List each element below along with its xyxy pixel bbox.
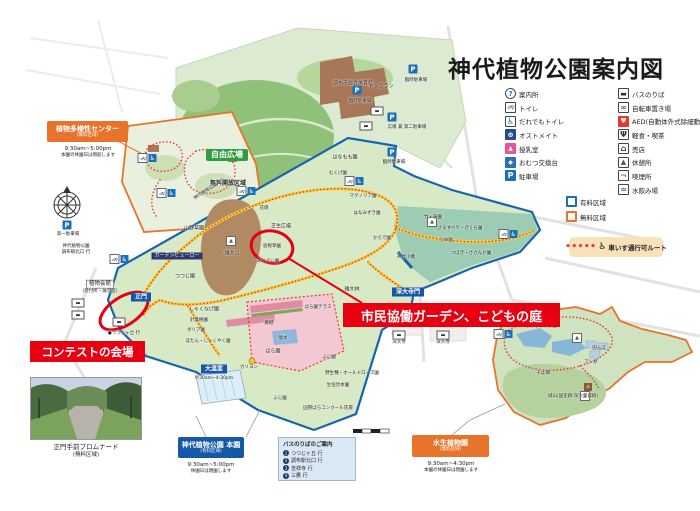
carillon xyxy=(249,358,255,364)
legend-label: 軽食・喫茶 xyxy=(632,130,665,140)
route-label: つつじヶ丘 行 xyxy=(291,450,323,457)
map-label: 野生種・オールドローズ園 xyxy=(325,372,379,377)
area-name: 神代植物公園 本園 xyxy=(178,441,244,449)
legend-item: ⌂売店 xyxy=(618,142,700,156)
map-label: つつじ園 xyxy=(175,275,195,280)
map-label: 正門 xyxy=(131,293,151,302)
diversity-center-hours: 9:30am~5:00pm 本園の休園日は閉館します xyxy=(61,145,115,160)
paid-icon xyxy=(566,196,577,207)
map-label: むくげ園 xyxy=(329,172,347,177)
legend-label: AED(自動体外式除細動器) xyxy=(632,116,700,126)
map-label: 深大寺 xyxy=(392,341,406,346)
wheelchair-icon: ♿ xyxy=(598,243,606,252)
map-icon-wc: ♂♀♿ xyxy=(345,176,364,186)
map-label: 調布市総合体育館 xyxy=(333,82,373,87)
legend-label: 自転車置き場 xyxy=(632,103,671,113)
bus-icon: ▬ xyxy=(437,331,450,340)
map-label: 竹・笹園 xyxy=(424,216,442,221)
photo-caption: 正門手前プロムナード (無料区域) xyxy=(54,443,119,459)
rest-area-icon: ▲ xyxy=(572,333,582,343)
map-label: 針葉樹園 xyxy=(190,319,208,324)
map-label: しゃくなげ園 xyxy=(189,308,219,313)
map-icon-p: P xyxy=(63,221,72,230)
map-label: 神代植物公園 xyxy=(63,245,90,250)
legend-item: ♥AED(自動体外式除細動器) xyxy=(618,114,700,128)
label-connector xyxy=(196,410,260,437)
nurse-icon: ▲ xyxy=(505,143,516,154)
map-icon-p: P xyxy=(388,148,397,157)
park-map-page: 神代植物公園案内図 ?案内所♂♀トイレ♿だれでもトイレ⊕オストメイト▲授乳室◆お… xyxy=(0,0,700,511)
map-icon-bus: ▬ xyxy=(72,299,85,308)
map-label: 植物会館 xyxy=(86,280,114,289)
legend-item: ¬喫煙所 xyxy=(618,169,700,183)
toilet-icon: ♂♀ xyxy=(499,229,509,239)
toilet-icon: ♂♀ xyxy=(138,153,148,163)
map-icon-wc: ♂♀♿ xyxy=(110,254,129,264)
legend-item: ▲授乳室 xyxy=(505,142,564,156)
map-label: ぼたん・しゃくやく園 xyxy=(186,340,231,345)
legend-item: 無料区域 xyxy=(566,209,606,224)
toilet-icon: ♂♀ xyxy=(494,329,504,339)
main-garden-hours: 9:30am~5:00pm 休園日は閉園します xyxy=(188,461,235,476)
map-label: カリヨン xyxy=(240,366,258,371)
legend-item: 有料区域 xyxy=(566,194,606,209)
parking-icon: P xyxy=(63,221,72,230)
shop-icon: ⌂ xyxy=(618,143,629,154)
aquatic-garden-box: 水生植物園 (無料区域) xyxy=(412,435,489,457)
map-icon-p: P xyxy=(388,113,397,122)
legend-column-2: ▬バスのりば∞自転車置き場♥AED(自動体外式除細動器)Ψ軽食・喫茶⌂売店▲休憩… xyxy=(618,87,700,197)
toilet-icon: ♂♀ xyxy=(157,188,167,198)
map-label: 噴水 xyxy=(279,337,288,342)
bus-stop-guide: バスのりばのご案内 1つつじヶ丘 行2調布駅北口 行3吉祥寺 行4三鷹 行 xyxy=(278,437,356,481)
scale-bar xyxy=(353,429,389,433)
bus-guide-rows: 1つつじヶ丘 行2調布駅北口 行3吉祥寺 行4三鷹 行 xyxy=(283,450,351,480)
area-zone: (有料区域) xyxy=(178,449,244,454)
map-label: 城山(国史跡:深大寺城跡) xyxy=(548,395,598,400)
accessible-toilet-icon: ♿ xyxy=(505,330,513,338)
bus-icon: ▬ xyxy=(360,122,373,131)
map-label: 第一駐車場 xyxy=(57,233,80,238)
map-icon-wc: ♂♀♿ xyxy=(237,186,256,196)
map-label: かえで園 xyxy=(373,237,391,242)
acc-icon: ♿ xyxy=(505,116,516,127)
plaza-grove xyxy=(172,80,220,112)
bus-guide-title: バスのりばのご案内 xyxy=(283,440,351,448)
bus-icon: ▬ xyxy=(72,311,85,320)
map-label: 深大寺 xyxy=(436,341,450,346)
diaper-icon: ◆ xyxy=(505,157,516,168)
main-garden-box: 神代植物公園 本園 (有料区域) xyxy=(178,437,244,458)
free-icon xyxy=(566,211,577,222)
map-label: 藤棚 xyxy=(265,322,274,327)
accessible-toilet-icon: ♿ xyxy=(248,187,256,195)
bus-route: 3吉祥寺 行 xyxy=(283,465,351,473)
map-label: 田んぼ xyxy=(592,347,606,352)
wheelchair-route-label: 車いす通行可ルート xyxy=(608,242,667,252)
legend-item: ?案内所 xyxy=(505,87,564,101)
route-label: 調布駅北口 行 xyxy=(291,457,323,464)
map-label: 神代小橋 xyxy=(397,256,415,261)
hours-line: 9:30am~5:00pm xyxy=(188,461,235,469)
map-icon-wc: ♂♀♿ xyxy=(494,329,513,339)
accessible-toilet-icon: ♿ xyxy=(121,255,129,263)
map-label: ドッグラン xyxy=(368,85,393,90)
route-label: 吉祥寺 行 xyxy=(291,465,313,472)
map-label: 雑木山 xyxy=(224,252,239,257)
map-label: ダリア園 xyxy=(187,329,205,334)
legend-label: 案内所 xyxy=(519,89,539,99)
legend-item: ⊕オストメイト xyxy=(505,128,564,142)
wc-icon: ♂♀ xyxy=(505,102,516,113)
map-icon-rest: ▲ xyxy=(226,236,236,246)
map-label: ばら園テラス xyxy=(305,306,332,311)
legend-item: ∞自転車置き場 xyxy=(618,101,700,115)
aquatic-garden-hours: 9:30am~4:30pm 本園の休園日は閉園します xyxy=(424,460,478,475)
map-icon-p: P xyxy=(409,65,418,74)
bus-icon: ▬ xyxy=(113,318,126,327)
bus-route: 2調布駅北口 行 xyxy=(283,457,351,465)
map-label: つばき・さざんか園 xyxy=(451,252,492,257)
legend-label: おむつ交換台 xyxy=(519,157,558,167)
map-label: アシ原 xyxy=(584,361,597,366)
map-label: ふじ園 xyxy=(322,356,336,361)
route-dots: ••••• xyxy=(565,243,596,252)
water-icon: ≈ xyxy=(618,184,629,195)
page-title: 神代植物公園案内図 xyxy=(448,50,664,84)
map-label: 山野草園 xyxy=(184,227,204,232)
aed-icon: ♥ xyxy=(618,116,629,127)
bus-route: 1つつじヶ丘 行 xyxy=(283,450,351,458)
area-zone: (無料区域) xyxy=(412,447,489,452)
legend-label: だれでもトイレ xyxy=(519,116,564,126)
route-number: 2 xyxy=(283,458,289,464)
map-label: 芝生広場 xyxy=(271,225,291,230)
route-number: 4 xyxy=(283,473,289,479)
toilet-icon: ♂♀ xyxy=(237,186,247,196)
legend-label: 休憩所 xyxy=(632,157,652,167)
legend-item: ♂♀トイレ xyxy=(505,101,564,115)
food-icon: Ψ xyxy=(618,129,629,140)
hut-icon: ⌂ xyxy=(584,383,592,391)
compass-rose xyxy=(54,186,80,218)
map-label: あじさい園 xyxy=(257,260,280,265)
route-number: 1 xyxy=(283,450,289,456)
map-icon-bus: ▬ xyxy=(371,107,384,116)
legend-areas: 有料区域無料区域 xyxy=(566,194,606,224)
accessible-toilet-icon: ♿ xyxy=(356,177,364,185)
contest-venue-label: コンテストの会場 xyxy=(30,341,145,362)
caption-zone: (無料区域) xyxy=(54,452,119,459)
map-label: 調布駅北口 行 xyxy=(62,251,90,256)
parking-icon: P xyxy=(409,65,418,74)
map-label: (受付所・展示室) xyxy=(82,290,117,295)
map-label: そば畑 xyxy=(536,372,550,377)
map-icon-wc: ♂♀♿ xyxy=(138,153,157,163)
park-icon: P xyxy=(505,170,516,181)
bike-icon: ∞ xyxy=(618,102,629,113)
legend-label: 駐車場 xyxy=(519,171,539,181)
rest-area-icon: ▲ xyxy=(226,236,236,246)
diversity-center-box: 植物多様性センター (無料区域) xyxy=(47,121,128,142)
legend-item: ♿だれでもトイレ xyxy=(505,114,564,128)
legend-label: 有料区域 xyxy=(580,197,606,207)
map-label: 花壇 xyxy=(260,207,269,212)
map-icon-bus: ▬ xyxy=(437,331,450,340)
ost-icon: ⊕ xyxy=(505,129,516,140)
map-label: マグノリア園 xyxy=(350,195,377,200)
parking-icon: P xyxy=(388,113,397,122)
bus-icon: ▬ xyxy=(393,331,406,340)
legend-label: 授乳室 xyxy=(519,144,539,154)
map-label: 臨時駐車場 xyxy=(383,161,406,166)
map-label: 臨時駐車場 xyxy=(349,100,372,105)
legend-label: バスのりば xyxy=(632,89,665,99)
map-label: 大温室 xyxy=(201,365,227,374)
map-icon-bus: ▬ xyxy=(113,318,126,327)
accessible-toilet-icon: ♿ xyxy=(168,189,176,197)
map-label: 9:30am~4:30pm xyxy=(195,377,233,382)
toilet-icon: ♂♀ xyxy=(110,254,120,264)
map-icon-bus: ▬ xyxy=(393,331,406,340)
map-label: さるすべり・ざくら園 xyxy=(438,227,483,232)
streets-faint xyxy=(26,20,168,112)
parking-icon: P xyxy=(388,148,397,157)
hours-line: 9:30am~4:30pm xyxy=(424,460,478,468)
map-icon-bus: ▬ xyxy=(72,311,85,320)
rest-icon: ▲ xyxy=(618,157,629,168)
route-label: 三鷹 行 xyxy=(291,472,308,479)
toilet-icon: ♂♀ xyxy=(345,176,355,186)
legend-item: ≈水飲み場 xyxy=(618,183,700,197)
info-icon: ? xyxy=(505,88,516,99)
hours-note: 本園の休園日は閉園します xyxy=(424,468,478,475)
legend-column-1: ?案内所♂♀トイレ♿だれでもトイレ⊕オストメイト▲授乳室◆おむつ交換台P駐車場 xyxy=(505,87,564,183)
map-label: ●つつじヶ丘 行 xyxy=(108,332,140,337)
bus-icon: ▬ xyxy=(72,299,85,308)
hours-note: 休園日は閉園します xyxy=(188,469,235,476)
bus-route: 4三鷹 行 xyxy=(283,472,351,480)
citizen-garden-label: 市民協働ガーデン、こどもの庭 xyxy=(343,303,560,327)
map-label: ふじ園 xyxy=(273,397,287,402)
legend-item: ▲休憩所 xyxy=(618,155,700,169)
map-icon-wc: ♂♀♿ xyxy=(157,188,176,198)
map-label: うめ園 xyxy=(439,239,453,244)
map-label: 臨時駐車場 xyxy=(405,79,428,84)
legend-item: ▬バスのりば xyxy=(618,87,700,101)
legend-label: 売店 xyxy=(632,144,645,154)
map-label: はなもも園 xyxy=(332,156,357,161)
legend-label: 無料区域 xyxy=(580,212,606,222)
legend-item: ◆おむつ交換台 xyxy=(505,155,564,169)
caption-line: 正門手前プロムナード xyxy=(54,443,119,452)
map-label: 広場 兼 第二駐車場 xyxy=(388,126,427,131)
map-icon-rest: ▲ xyxy=(572,333,582,343)
route-number: 3 xyxy=(283,465,289,471)
map-label: 自由広場 xyxy=(206,149,248,161)
legend-label: 水飲み場 xyxy=(632,185,658,195)
map-icon-bus: ▬ xyxy=(360,122,373,131)
area-zone: (無料区域) xyxy=(47,133,128,138)
map-label: はなみずき園 xyxy=(354,212,381,217)
map-label: 宿根草園 xyxy=(263,245,281,250)
map-icon-p: P xyxy=(353,86,362,95)
map-label: 国際ばらコンクール花壇 xyxy=(303,407,353,412)
map-label: 深大寺門 xyxy=(392,288,424,297)
promenade-photo xyxy=(30,377,142,440)
map-label: 雑木林 xyxy=(344,288,359,293)
legend-label: トイレ xyxy=(519,103,539,113)
label-connector xyxy=(452,404,505,435)
map-icon-hut: ⌂ xyxy=(584,383,592,391)
legend-label: 喫煙所 xyxy=(632,171,652,181)
map-label: ばら園 xyxy=(265,350,280,355)
legend-item: Ψ軽食・喫茶 xyxy=(618,128,700,142)
photo-image xyxy=(31,378,141,439)
area-name: 植物多様性センター xyxy=(47,125,128,133)
smoke-icon: ¬ xyxy=(618,170,629,181)
bus-icon: ▬ xyxy=(371,107,384,116)
wheelchair-route-badge: ••••• ♿ 車いす通行可ルート xyxy=(569,237,663,257)
hours-line: 9:30am~5:00pm xyxy=(61,145,115,153)
map-label: 生垣見本園 xyxy=(327,384,350,389)
bus-icon: ▬ xyxy=(618,88,629,99)
hours-note: 本園の休園日は閉館します xyxy=(61,153,115,160)
map-icon-wc: ♂♀♿ xyxy=(499,229,518,239)
accessible-toilet-icon: ♿ xyxy=(149,154,157,162)
map-label: ガーデンビューロー xyxy=(151,253,202,260)
legend-item: P駐車場 xyxy=(505,169,564,183)
legend-label: オストメイト xyxy=(519,130,558,140)
parking-icon: P xyxy=(353,86,362,95)
accessible-toilet-icon: ♿ xyxy=(510,230,518,238)
